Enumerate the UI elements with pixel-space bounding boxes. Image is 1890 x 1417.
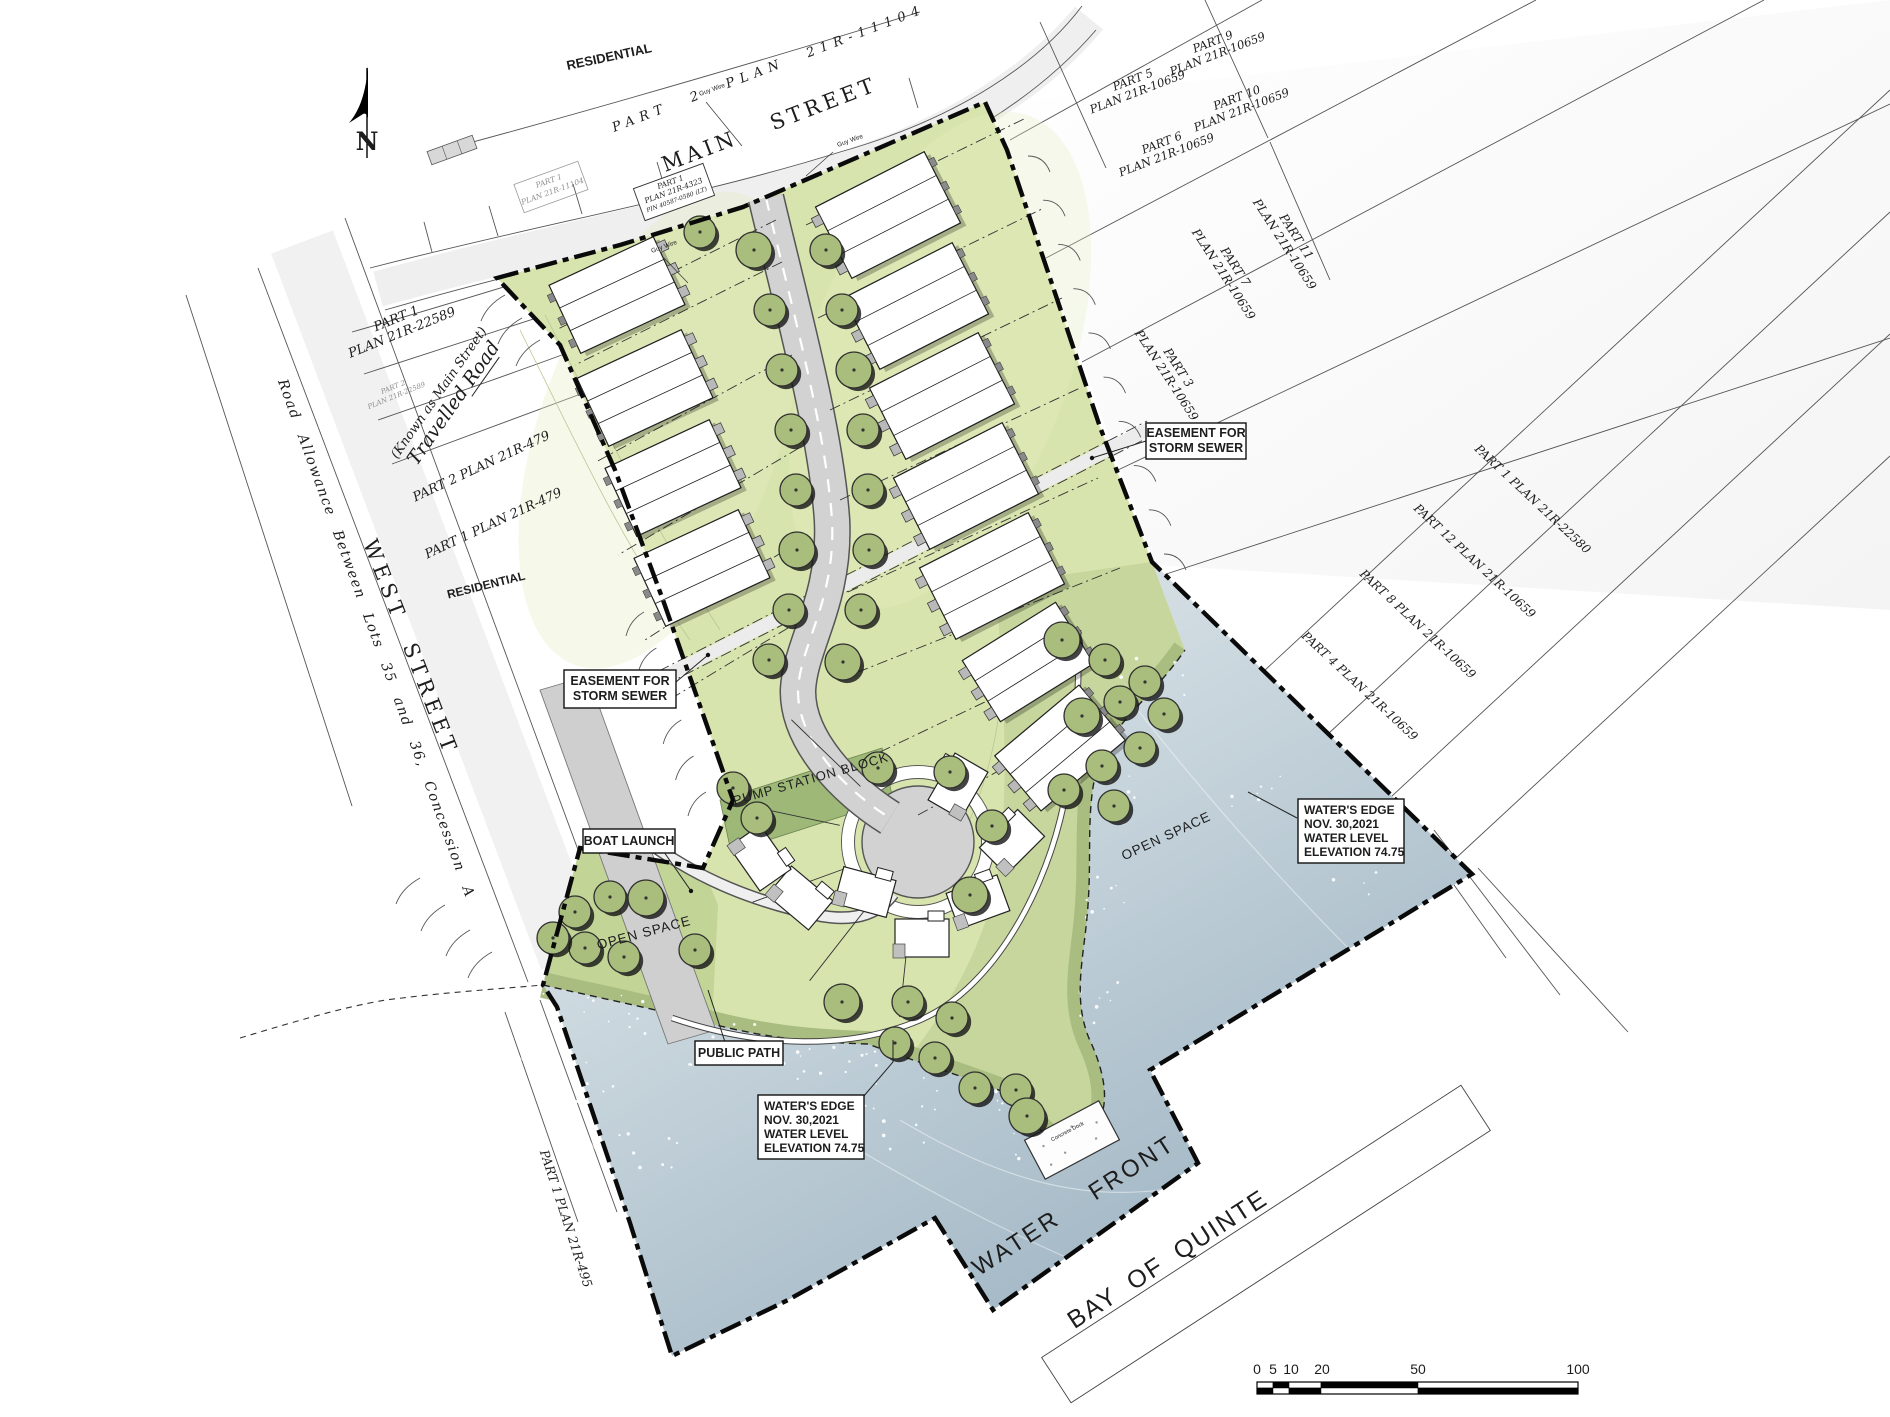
- sparkle: [1375, 871, 1378, 874]
- sparkle: [1271, 787, 1273, 789]
- sparkle: [585, 1062, 587, 1064]
- site-plan-drawing: Concrete Dock N RESIDENTIAL RESIDENTIAL …: [0, 0, 1890, 1417]
- sparkle: [602, 1090, 604, 1092]
- sparkle: [803, 1070, 806, 1073]
- sparkle: [661, 1163, 664, 1166]
- sparkle: [618, 1134, 620, 1136]
- sparkle: [621, 995, 622, 996]
- sparkle: [1123, 902, 1125, 904]
- sparkle: [668, 1137, 671, 1140]
- sparkle: [1106, 991, 1108, 993]
- svg-text:20: 20: [1314, 1361, 1330, 1377]
- sparkle: [865, 1105, 867, 1107]
- svg-text:EASEMENT FOR: EASEMENT FOR: [570, 674, 669, 688]
- sparkle: [800, 1055, 802, 1057]
- sparkle: [1093, 1021, 1096, 1024]
- svg-text:NOV. 30,2021: NOV. 30,2021: [764, 1113, 839, 1127]
- sparkle: [628, 1026, 630, 1028]
- sparkle: [1110, 887, 1113, 890]
- scale-segment: [1321, 1388, 1418, 1394]
- sparkle: [844, 1071, 846, 1073]
- sparkle: [809, 1048, 811, 1050]
- sparkle: [542, 993, 544, 995]
- sparkle: [576, 1100, 579, 1103]
- sparkle: [921, 1105, 923, 1107]
- sparkle: [612, 1085, 615, 1088]
- sparkle: [494, 995, 496, 997]
- svg-text:WATER LEVEL: WATER LEVEL: [1304, 831, 1388, 845]
- scale-segment: [1289, 1388, 1321, 1394]
- sparkle: [915, 1124, 918, 1127]
- svg-text:10: 10: [1283, 1361, 1299, 1377]
- sparkle: [796, 1050, 800, 1054]
- scale-segment: [1257, 1382, 1273, 1388]
- sparkle: [1115, 885, 1117, 887]
- sparkle: [608, 1021, 610, 1023]
- sparkle: [1173, 661, 1176, 664]
- sparkle: [797, 1078, 799, 1080]
- sparkle: [554, 1101, 557, 1104]
- sparkle: [874, 1050, 876, 1052]
- sparkle: [819, 1072, 822, 1075]
- sparkle: [510, 990, 512, 992]
- sparkle: [592, 999, 595, 1002]
- sparkle: [1001, 1102, 1003, 1104]
- sparkle: [865, 1053, 867, 1055]
- sparkle: [670, 1166, 672, 1168]
- svg-text:100: 100: [1566, 1361, 1590, 1377]
- sparkle: [1256, 793, 1258, 795]
- sparkle: [1183, 694, 1185, 696]
- sparkle: [1332, 878, 1335, 881]
- svg-text:EASEMENT FOR: EASEMENT FOR: [1146, 426, 1245, 440]
- sparkle: [1127, 790, 1131, 794]
- sparkle: [1013, 1133, 1014, 1134]
- sparkle: [1230, 795, 1233, 798]
- sparkle: [711, 1035, 714, 1038]
- sparkle: [515, 993, 518, 996]
- sparkle: [882, 1134, 886, 1138]
- sparkle: [494, 1016, 498, 1020]
- sparkle: [889, 1148, 892, 1151]
- sparkle: [1079, 1015, 1082, 1018]
- sparkle: [511, 996, 514, 999]
- sparkle: [997, 1100, 999, 1102]
- sparkle: [1099, 997, 1101, 999]
- site-plan-page: Concrete Dock N RESIDENTIAL RESIDENTIAL …: [0, 0, 1890, 1417]
- sparkle: [690, 1063, 692, 1065]
- sparkle: [1119, 675, 1123, 679]
- sparkle: [1363, 882, 1365, 884]
- sparkle: [583, 1011, 585, 1013]
- scale-segment: [1273, 1382, 1289, 1388]
- sparkle: [499, 995, 502, 998]
- sparkle: [569, 1090, 572, 1093]
- sparkle: [1128, 776, 1129, 777]
- svg-text:WATER'S EDGE: WATER'S EDGE: [1304, 803, 1395, 817]
- sparkle: [586, 1082, 589, 1085]
- sparkle: [523, 1000, 526, 1003]
- sparkle: [1116, 981, 1119, 984]
- sparkle: [627, 1132, 630, 1135]
- sparkle: [644, 1032, 647, 1035]
- sparkle: [733, 1023, 736, 1026]
- sparkle: [628, 1013, 630, 1015]
- scale-segment: [1321, 1382, 1418, 1388]
- sparkle: [934, 1109, 936, 1111]
- sparkle: [1133, 796, 1136, 799]
- sparkle: [861, 1054, 864, 1057]
- sparkle: [638, 1166, 642, 1170]
- scale-segment: [1289, 1382, 1321, 1388]
- sparkle: [632, 1151, 635, 1154]
- svg-text:STORM SEWER: STORM SEWER: [1149, 441, 1243, 455]
- scale-segment: [1418, 1388, 1578, 1394]
- svg-text:WATER'S EDGE: WATER'S EDGE: [764, 1099, 855, 1113]
- svg-text:WATER LEVEL: WATER LEVEL: [764, 1127, 848, 1141]
- svg-text:BOAT LAUNCH: BOAT LAUNCH: [584, 834, 675, 848]
- sparkle: [1096, 876, 1099, 879]
- sparkle: [848, 1060, 850, 1062]
- svg-text:PUBLIC PATH: PUBLIC PATH: [698, 1046, 780, 1060]
- sparkle: [1368, 893, 1370, 895]
- sparkle: [587, 997, 589, 999]
- sparkle: [1086, 899, 1088, 901]
- sparkle: [518, 1023, 520, 1025]
- sparkle: [875, 1083, 877, 1085]
- sparkle: [636, 1017, 638, 1019]
- scale-segment: [1257, 1388, 1273, 1394]
- svg-text:5: 5: [1269, 1361, 1277, 1377]
- sparkle: [1135, 657, 1139, 661]
- sparkle: [1260, 785, 1262, 787]
- svg-text:ELEVATION 74.75: ELEVATION 74.75: [1304, 845, 1405, 859]
- north-label: N: [356, 127, 379, 156]
- sparkle: [641, 1000, 644, 1003]
- svg-text:0: 0: [1253, 1361, 1261, 1377]
- sparkle: [531, 1014, 534, 1017]
- sparkle: [1017, 1157, 1020, 1160]
- svg-text:ELEVATION 74.75: ELEVATION 74.75: [764, 1141, 865, 1155]
- sparkle: [936, 1090, 938, 1092]
- sparkle: [875, 1064, 878, 1067]
- scale-segment: [1273, 1388, 1289, 1394]
- sparkle: [1095, 1005, 1099, 1009]
- sparkle: [676, 1142, 678, 1144]
- sparkle: [1015, 1154, 1017, 1156]
- sparkle: [1231, 805, 1233, 807]
- sparkle: [505, 1009, 507, 1011]
- sparkle: [882, 1119, 886, 1123]
- sparkle: [1182, 674, 1184, 676]
- sparkle: [923, 1077, 925, 1079]
- sparkle: [1279, 776, 1281, 778]
- sparkle: [832, 1046, 835, 1049]
- sparkle: [999, 1109, 1001, 1111]
- svg-text:STORM SEWER: STORM SEWER: [573, 689, 667, 703]
- svg-text:50: 50: [1410, 1361, 1426, 1377]
- sparkle: [873, 1107, 875, 1109]
- sparkle: [1110, 1000, 1112, 1002]
- scale-segment: [1418, 1382, 1578, 1388]
- sparkle: [923, 1142, 925, 1144]
- sparkle: [753, 1023, 756, 1026]
- sparkle: [1090, 910, 1094, 914]
- svg-text:NOV. 30,2021: NOV. 30,2021: [1304, 817, 1379, 831]
- sparkle: [1103, 908, 1105, 910]
